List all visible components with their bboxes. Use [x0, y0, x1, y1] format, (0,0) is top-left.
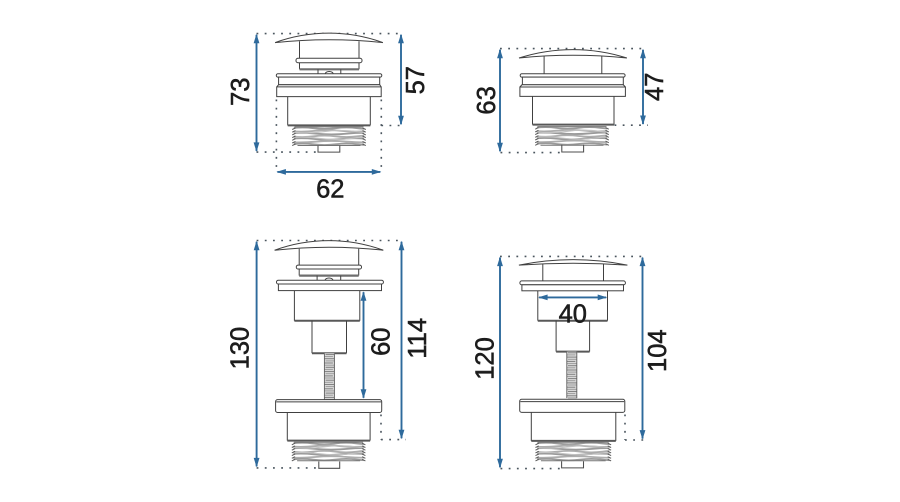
- svg-text:60: 60: [367, 328, 395, 356]
- svg-text:47: 47: [641, 73, 669, 101]
- svg-text:130: 130: [226, 327, 254, 370]
- svg-text:40: 40: [559, 300, 587, 328]
- svg-text:62: 62: [316, 176, 344, 204]
- svg-text:120: 120: [472, 337, 500, 380]
- svg-text:104: 104: [644, 329, 672, 372]
- svg-text:73: 73: [227, 78, 255, 106]
- svg-text:114: 114: [404, 318, 432, 359]
- svg-text:63: 63: [473, 86, 501, 114]
- svg-text:57: 57: [402, 66, 430, 94]
